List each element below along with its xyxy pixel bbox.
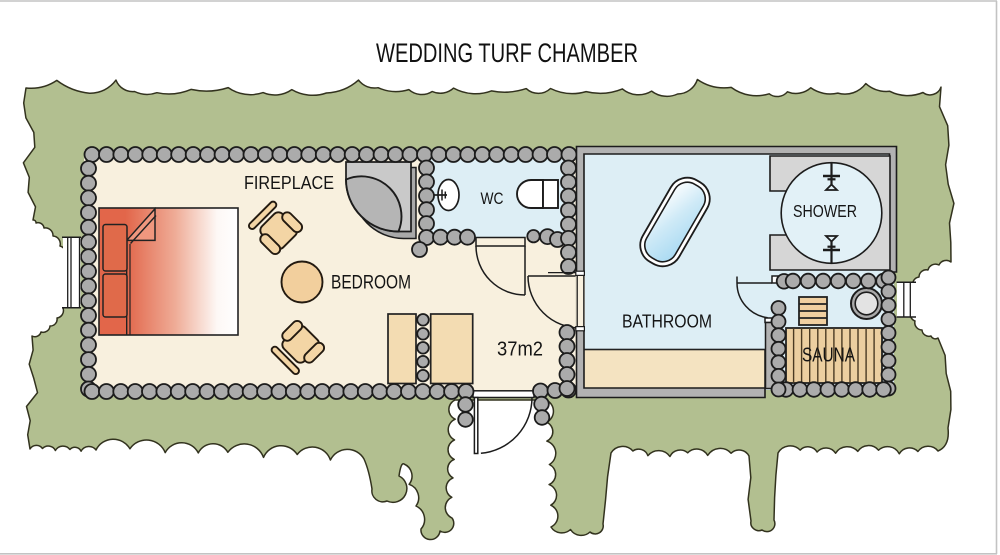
svg-text:BEDROOM: BEDROOM — [331, 273, 411, 294]
svg-text:WEDDING TURF CHAMBER: WEDDING TURF CHAMBER — [376, 38, 638, 68]
svg-text:FIREPLACE: FIREPLACE — [244, 173, 334, 193]
svg-text:SAUNA: SAUNA — [802, 345, 856, 367]
svg-text:WC: WC — [481, 189, 504, 208]
svg-text:BATHROOM: BATHROOM — [622, 311, 712, 332]
svg-text:37m2: 37m2 — [497, 339, 543, 361]
svg-text:SHOWER: SHOWER — [793, 201, 857, 221]
